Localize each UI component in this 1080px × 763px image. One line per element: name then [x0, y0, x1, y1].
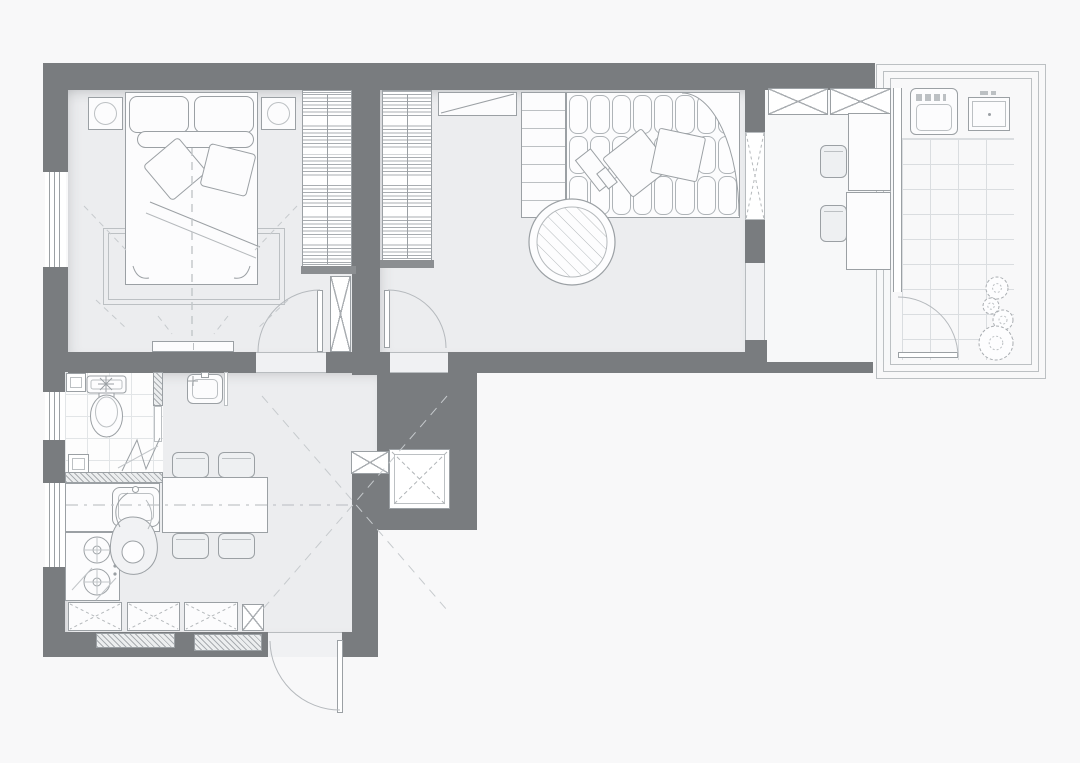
dining-chair-3: [172, 533, 209, 559]
balcony-tiled-floor: [902, 138, 1014, 360]
sofa-pillow-2: [650, 128, 707, 183]
bedroom-door-threshold: [256, 352, 326, 373]
wardrobe-rail: [327, 94, 328, 264]
wall-living-office-b: [745, 220, 765, 263]
bathroom-corner-box: [66, 373, 86, 392]
kitchen-sink-basin: [118, 493, 154, 521]
nightstand-right: [261, 97, 296, 130]
bedroom-bench-line: [193, 343, 194, 350]
shaft-box: [389, 449, 450, 509]
dining-chair-4: [218, 533, 255, 559]
bathroom-kitchen-sill: [65, 472, 163, 483]
dining-table: [162, 477, 268, 533]
living-office-passage: [745, 263, 765, 340]
living-wardrobe: [382, 90, 432, 262]
bathroom-corner-box-inner: [70, 377, 82, 388]
office-chair-1: [820, 145, 847, 178]
bed-bolster: [137, 131, 254, 148]
bed-pillow-right: [194, 96, 254, 133]
utility-sink-tap-marks: [991, 91, 996, 95]
washing-machine: [910, 88, 958, 135]
kitchen-sink: [112, 487, 160, 527]
base-cabinet-4: [242, 604, 264, 631]
wall-entry-stub: [342, 632, 378, 657]
nightstand-left-lamp: [94, 102, 117, 125]
dining-chair-1: [172, 452, 209, 478]
dining-chair-2: [218, 452, 255, 478]
wall-top: [43, 63, 875, 90]
wall-stub-living-door: [380, 352, 390, 373]
entry-door-threshold: [268, 632, 342, 657]
wall-left-upper-a: [43, 90, 68, 172]
bedroom-shaft-cabinet: [330, 276, 351, 352]
wall-left-lower-c: [43, 567, 65, 656]
floor-plan: [0, 0, 1080, 763]
wall-office-bottom: [767, 362, 873, 373]
base-cabinet-2: [127, 602, 180, 631]
office-chair-2: [820, 205, 847, 242]
office-side-table: [846, 192, 891, 270]
bedroom-bench: [152, 341, 234, 352]
utility-sink-drain: [988, 113, 991, 116]
wall-hall-east: [352, 472, 378, 657]
base-cabinet-1: [68, 602, 122, 631]
wall-bottom-bedroom: [68, 352, 256, 373]
living-door-threshold: [390, 352, 448, 373]
floor-drain-inner: [72, 458, 85, 470]
washbasin-tap: [201, 372, 209, 378]
wall-divider-notch: [745, 340, 767, 373]
nook-partition: [224, 372, 228, 406]
wall-left-lower-b: [43, 440, 65, 483]
utility-sink: [968, 97, 1010, 131]
tv-shelf: [438, 92, 517, 116]
balcony-door-leaf: [898, 352, 958, 358]
radiator-2: [194, 634, 262, 651]
nightstand-left: [88, 97, 123, 130]
balcony-divider: [893, 88, 902, 292]
wall-living-office-a: [745, 90, 765, 132]
bed-pillow-left: [129, 96, 189, 133]
bedroom-wardrobe-sill: [301, 266, 356, 274]
hallway-cabinet: [351, 451, 389, 474]
floor-drain: [68, 454, 89, 474]
bedroom-window: [45, 172, 66, 267]
living-door-leaf: [384, 290, 390, 348]
kitchen-faucet: [132, 486, 139, 493]
wall-stub-bedroom-door: [326, 352, 352, 373]
bedroom-door-leaf: [317, 290, 323, 352]
interior-window-living-office: [745, 132, 765, 220]
bathroom-plumbing-wall: [153, 372, 163, 406]
bedroom-wardrobe: [302, 90, 352, 268]
wall-left-lower-a: [43, 372, 65, 392]
shelf-unit: [521, 92, 566, 218]
base-cabinet-3: [184, 602, 238, 631]
wall-left-upper-b: [43, 267, 68, 372]
radiator-1: [96, 633, 175, 648]
office-wall-cabinet-1: [768, 88, 828, 115]
bathroom-partition: [154, 406, 162, 442]
office-desk: [848, 113, 891, 191]
washbasin: [187, 374, 223, 404]
bathroom-window: [45, 392, 65, 440]
utility-sink-tap-marks: [980, 91, 988, 95]
entry-door-leaf: [337, 640, 343, 713]
kitchen-window: [45, 483, 65, 567]
shaft-box-inner: [394, 454, 445, 504]
washbasin-bowl: [192, 379, 218, 399]
living-wardrobe-sill: [380, 260, 434, 268]
wall-bottom-living: [448, 352, 745, 373]
office-wall-cabinet-2: [830, 88, 891, 115]
cooktop: [65, 532, 120, 601]
wall-bedroom-living: [352, 63, 380, 375]
washer-controls: [916, 94, 946, 101]
wardrobe-rail: [407, 94, 408, 258]
nightstand-right-lamp: [267, 102, 290, 125]
washer-drum: [916, 104, 952, 131]
